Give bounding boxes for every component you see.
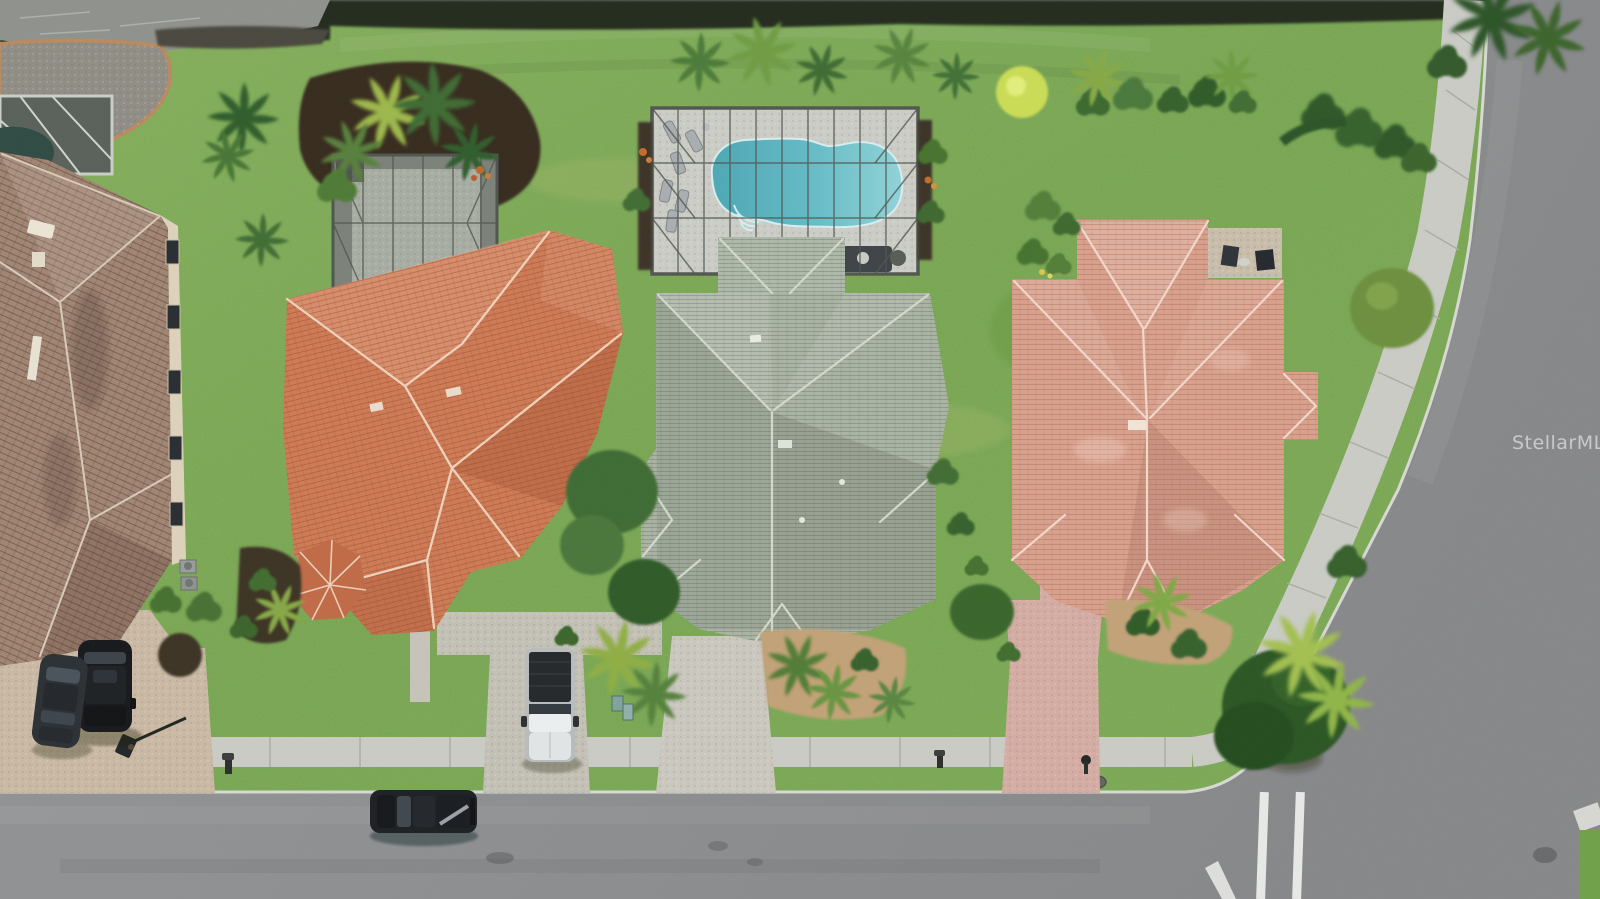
photo-grain <box>0 0 1600 899</box>
aerial-photo: StellarMLS <box>0 0 1600 899</box>
aerial-scene <box>0 0 1600 899</box>
